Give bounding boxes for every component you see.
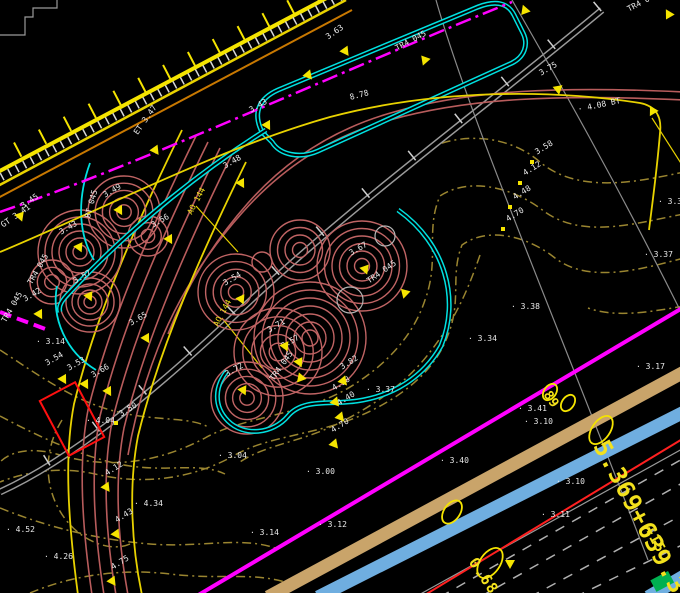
tree-canopy-ring [240, 391, 254, 405]
tree-canopy-ring [213, 269, 259, 315]
tree-canopy-ring [78, 290, 102, 314]
building-outline [0, 0, 57, 35]
tree-canopy-ring [317, 221, 407, 311]
tree-canopy-ring [211, 362, 283, 434]
tree-canopy-ring [234, 308, 322, 396]
tree-canopy-ring [73, 245, 87, 259]
tree-canopy-ring [117, 205, 131, 219]
cad-drawing-viewport[interactable]: 3.45GT 3.41TR4 0453.433.493.42TR4 0453.5… [0, 0, 680, 593]
tree-canopy-ring [278, 228, 323, 273]
tree-canopy-ring [52, 224, 108, 280]
tree-canopy-ring [347, 251, 377, 281]
tree-canopy-ring [325, 229, 400, 304]
tree-canopy-ring [84, 296, 96, 308]
tree-canopy-ring [221, 277, 251, 307]
tree-canopy-ring [340, 244, 385, 289]
embankment-hatched-edge [0, 0, 352, 199]
tree-canopy-ring [60, 272, 120, 332]
tree-canopy-ring [332, 236, 392, 296]
road-edge-curves [68, 89, 680, 593]
cad-drawing [0, 0, 680, 593]
tree-canopy-ring [252, 252, 272, 272]
tree-canopy-ring [228, 284, 243, 299]
tree-canopy-ring [355, 259, 370, 274]
cyan-boundaries [56, 3, 526, 431]
tree-canopy-ring [233, 384, 262, 413]
tree-canopy-ring [270, 220, 330, 280]
